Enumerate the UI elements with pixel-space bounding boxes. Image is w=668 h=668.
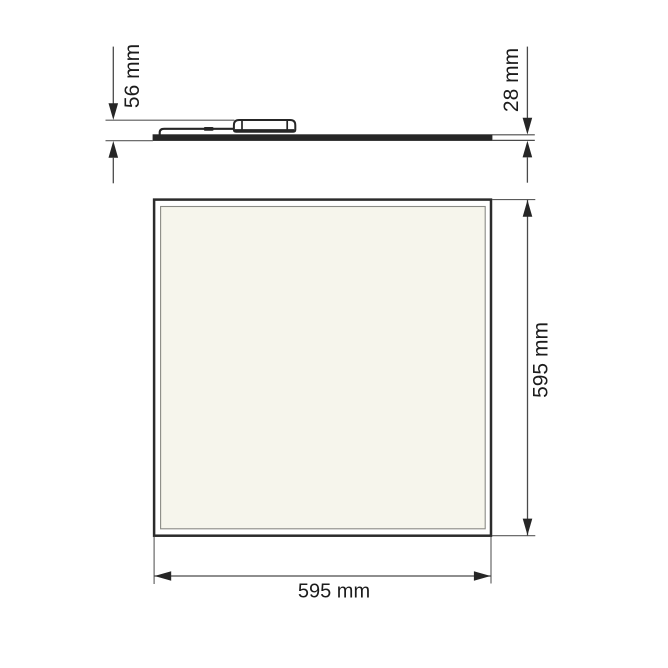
svg-text:595 mm: 595 mm <box>530 322 553 398</box>
svg-text:595 mm: 595 mm <box>298 581 370 603</box>
svg-text:56 mm: 56 mm <box>121 44 144 108</box>
svg-text:28 mm: 28 mm <box>500 48 523 112</box>
